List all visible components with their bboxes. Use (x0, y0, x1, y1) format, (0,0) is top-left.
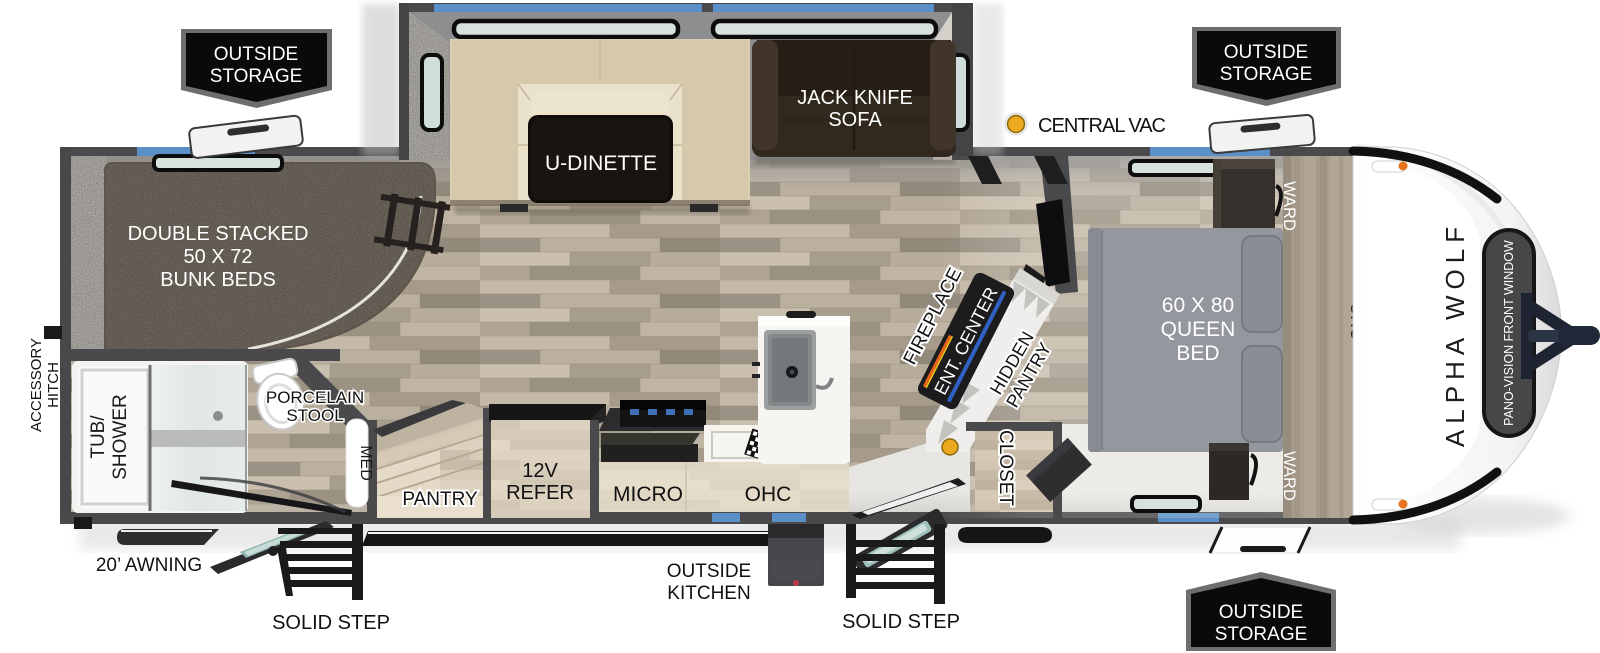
svg-text:SOLID STEP: SOLID STEP (272, 612, 390, 634)
svg-text:SOLID STEP: SOLID STEP (842, 611, 960, 633)
svg-text:DOUBLE STACKED: DOUBLE STACKED (128, 223, 309, 245)
svg-text:STOOL: STOOL (286, 406, 343, 425)
svg-text:CENTRAL VAC: CENTRAL VAC (1038, 115, 1166, 137)
svg-text:50 X 72: 50 X 72 (184, 246, 253, 268)
svg-text:TUB/: TUB/ (88, 415, 109, 459)
svg-text:PANO-VISION FRONT WINDOW: PANO-VISION FRONT WINDOW (1502, 240, 1516, 426)
svg-text:PANTRY: PANTRY (402, 489, 478, 510)
svg-text:CLOSET: CLOSET (995, 430, 1016, 506)
svg-text:STORAGE: STORAGE (1215, 624, 1308, 645)
svg-text:BUNK BEDS: BUNK BEDS (160, 269, 276, 291)
svg-text:60 X 80: 60 X 80 (1162, 294, 1234, 317)
svg-text:MICRO: MICRO (613, 483, 683, 506)
svg-text:12V: 12V (522, 460, 558, 482)
svg-text:PORCELAIN: PORCELAIN (266, 388, 364, 407)
svg-text:OUTSIDE: OUTSIDE (214, 44, 298, 65)
svg-text:JACK KNIFE: JACK KNIFE (797, 87, 913, 109)
svg-text:STORAGE: STORAGE (210, 66, 303, 87)
svg-text:KITCHEN: KITCHEN (667, 583, 750, 604)
svg-text:ACCESSORY: ACCESSORY (28, 338, 45, 432)
svg-text:WARD: WARD (1280, 451, 1298, 501)
svg-text:STORAGE: STORAGE (1220, 64, 1313, 85)
svg-text:QUEEN: QUEEN (1161, 318, 1236, 341)
svg-text:SHOWER: SHOWER (110, 394, 131, 480)
svg-text:REFER: REFER (506, 482, 574, 504)
svg-text:SOFA: SOFA (828, 109, 882, 131)
svg-text:BED: BED (1176, 342, 1219, 365)
svg-text:HITCH: HITCH (45, 362, 62, 408)
svg-text:ALPHA WOLF: ALPHA WOLF (1440, 221, 1470, 447)
svg-text:20’ AWNING: 20’ AWNING (96, 555, 202, 576)
svg-text:OUTSIDE: OUTSIDE (1224, 42, 1308, 63)
svg-text:WARD: WARD (1280, 181, 1298, 231)
svg-text:U-DINETTE: U-DINETTE (545, 152, 657, 175)
svg-text:OUTSIDE: OUTSIDE (667, 561, 751, 582)
svg-text:MED: MED (357, 445, 374, 481)
svg-text:OHC: OHC (745, 483, 792, 506)
svg-text:OUTSIDE: OUTSIDE (1219, 602, 1303, 623)
